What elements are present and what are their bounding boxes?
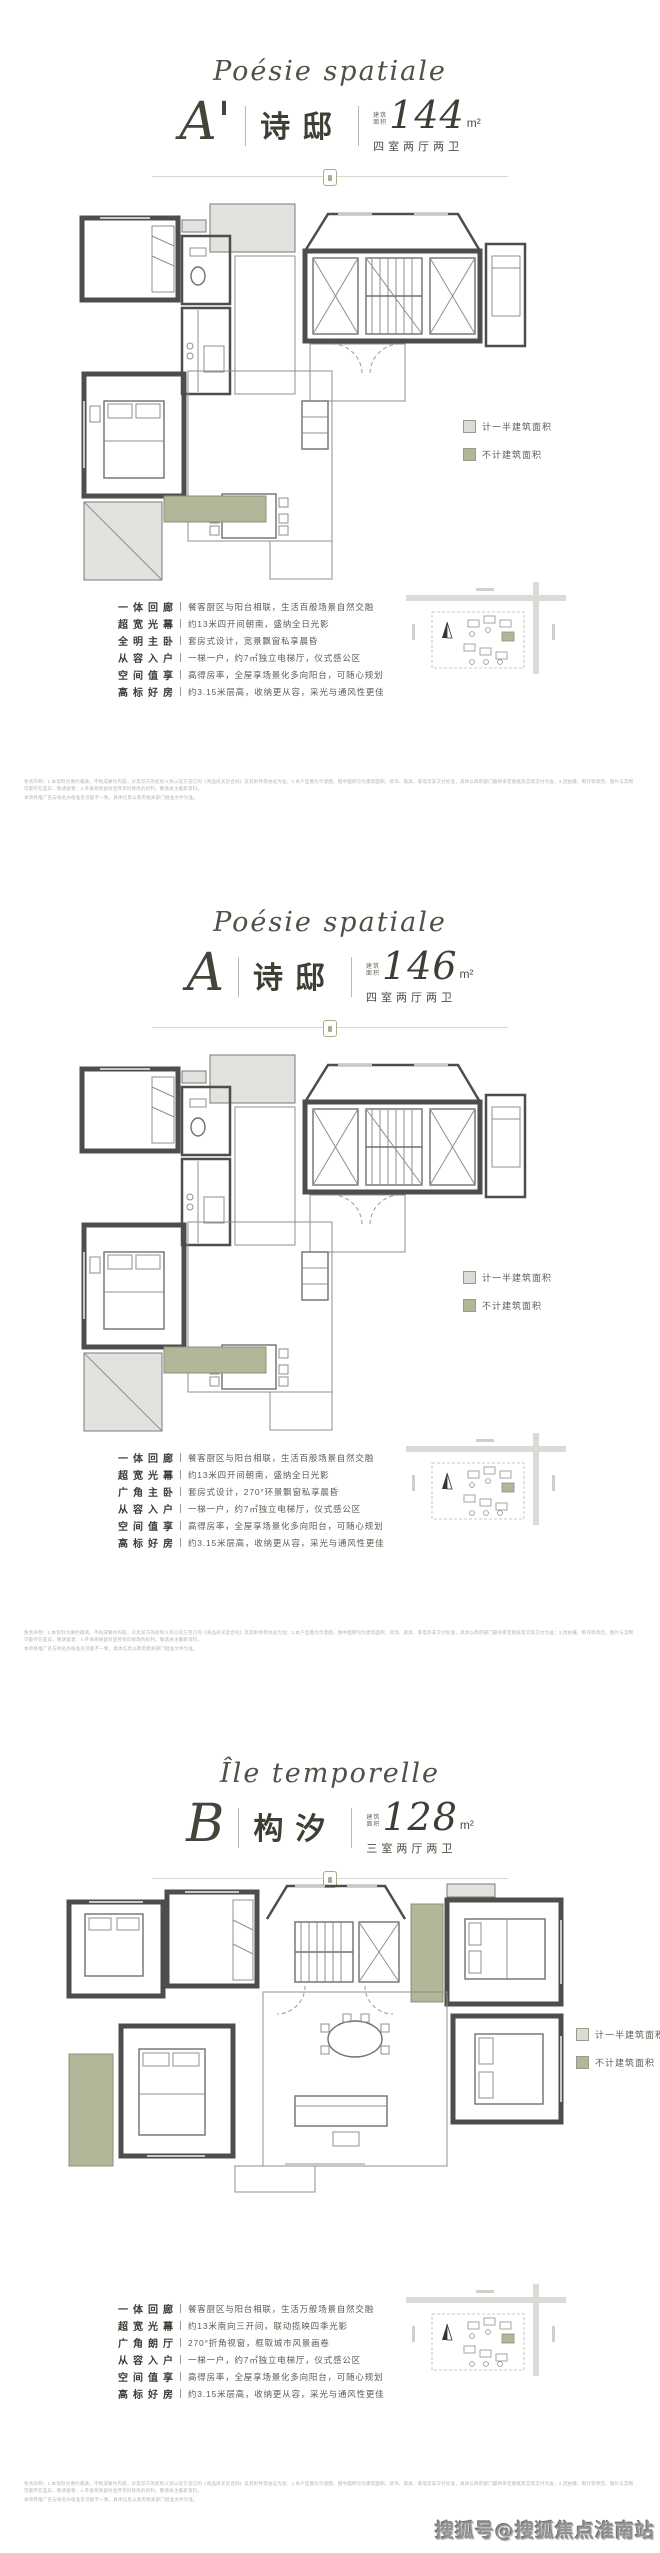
section-script-title: Poésie spatiale [0, 56, 660, 87]
headline-divider [238, 957, 239, 997]
plan-area-group: 建筑 面积 146 m² 四室两厅两卫 [366, 949, 474, 1004]
legend-item-half-area: 计一半建筑面积 [463, 1271, 552, 1284]
ornament-divider [152, 1027, 508, 1028]
headline-divider [245, 106, 246, 146]
headline-divider [351, 1808, 352, 1848]
sohu-watermark: 搜狐号@搜狐焦点淮南站 [435, 2516, 655, 2543]
floor-plan-svg [55, 1874, 585, 2204]
legend-item-no-area: 不计建筑面积 [463, 448, 552, 461]
plan-area-group: 建筑 面积 128 m² 三室两厅两卫 [366, 1800, 474, 1855]
legend-swatch-gray [576, 2028, 589, 2041]
legend-item-no-area: 不计建筑面积 [463, 1299, 552, 1312]
disclaimer-fineprint: 免责声明：1.本资料为要约邀请，不构成要约内容，买卖双方的权利义务以双方签订的《… [24, 2480, 638, 2505]
floor-plan-svg [70, 196, 530, 591]
disclaimer-fineprint: 免责声明：1.本资料为要约邀请，不构成要约内容，买卖双方的权利义务以双方签订的《… [24, 778, 638, 803]
feature-row: 高标好房约3.15米层高，收纳更从容，采光与通风性更佳 [118, 683, 548, 700]
legend-swatch-olive [463, 1299, 476, 1312]
plan-headline: A' 诗邸 建筑 面积 144 m² 四室两厅两卫 [0, 94, 660, 158]
seal-ornament-icon [323, 169, 337, 186]
area-value: 128 [382, 1800, 458, 1834]
area-label: 建筑 面积 [366, 964, 380, 978]
floor-plan-svg [70, 1047, 530, 1442]
seal-ornament-icon [323, 1020, 337, 1037]
minimap-svg [406, 582, 566, 674]
area-legend: 计一半建筑面积 不计建筑面积 [576, 2028, 660, 2084]
location-minimap [406, 1433, 566, 1530]
legend-swatch-olive [463, 448, 476, 461]
legend-swatch-gray [463, 1271, 476, 1284]
room-configuration: 四室两厅两卫 [373, 138, 463, 154]
plan-chinese-name: 诗邸 [253, 953, 337, 997]
section-plan-b: Île temporelle B 构汐 建筑 面积 128 m² 三室两厅两卫 [0, 1702, 660, 2553]
legend-item-half-area: 计一半建筑面积 [463, 420, 552, 433]
section-plan-a: Poésie spatiale A 诗邸 建筑 面积 146 m² 四室两厅两卫 [0, 851, 660, 1702]
legend-swatch-olive [576, 2056, 589, 2069]
plan-chinese-name: 诗邸 [260, 102, 344, 146]
area-legend: 计一半建筑面积 不计建筑面积 [463, 420, 552, 476]
area-unit: m² [467, 116, 481, 130]
room-configuration: 三室两厅两卫 [366, 1840, 456, 1856]
headline-divider [238, 1808, 239, 1848]
area-unit: m² [460, 1818, 474, 1832]
legend-item-half-area: 计一半建筑面积 [576, 2028, 660, 2041]
feature-row: 高标好房约3.15米层高，收纳更从容，采光与通风性更佳 [118, 1534, 548, 1551]
headline-divider [351, 957, 352, 997]
plan-headline: A 诗邸 建筑 面积 146 m² 四室两厅两卫 [0, 945, 660, 1009]
disclaimer-fineprint: 免责声明：1.本资料为要约邀请，不构成要约内容，买卖双方的权利义务以双方签订的《… [24, 1629, 638, 1654]
ornament-divider [152, 176, 508, 177]
area-unit: m² [460, 967, 474, 981]
floor-plan-b [55, 1874, 585, 2209]
feature-row: 高标好房约3.15米层高，收纳更从容，采光与通风性更佳 [118, 2385, 548, 2402]
section-plan-a-prime: Poésie spatiale A' 诗邸 建筑 面积 144 m² 四室两厅两… [0, 0, 660, 851]
location-minimap [406, 2284, 566, 2381]
area-label: 建筑 面积 [373, 113, 387, 127]
area-value: 146 [382, 949, 458, 983]
plan-area-group: 建筑 面积 144 m² 四室两厅两卫 [373, 98, 481, 153]
plan-chinese-name: 构汐 [253, 1804, 337, 1848]
plan-letter: B [186, 1798, 224, 1850]
plan-headline: B 构汐 建筑 面积 128 m² 三室两厅两卫 [0, 1796, 660, 1860]
section-script-title: Île temporelle [0, 1758, 660, 1789]
floor-plan-a [70, 1047, 530, 1447]
area-legend: 计一半建筑面积 不计建筑面积 [463, 1271, 552, 1327]
area-value: 144 [389, 98, 465, 132]
legend-swatch-gray [463, 420, 476, 433]
minimap-svg [406, 1433, 566, 1525]
plan-letter: A [186, 947, 224, 999]
headline-divider [358, 106, 359, 146]
plan-letter: A' [179, 96, 231, 148]
room-configuration: 四室两厅两卫 [366, 989, 456, 1005]
floor-plan-a-prime [70, 196, 530, 596]
area-label: 建筑 面积 [366, 1815, 380, 1829]
location-minimap [406, 582, 566, 679]
section-script-title: Poésie spatiale [0, 907, 660, 938]
minimap-svg [406, 2284, 566, 2376]
legend-item-no-area: 不计建筑面积 [576, 2056, 660, 2069]
